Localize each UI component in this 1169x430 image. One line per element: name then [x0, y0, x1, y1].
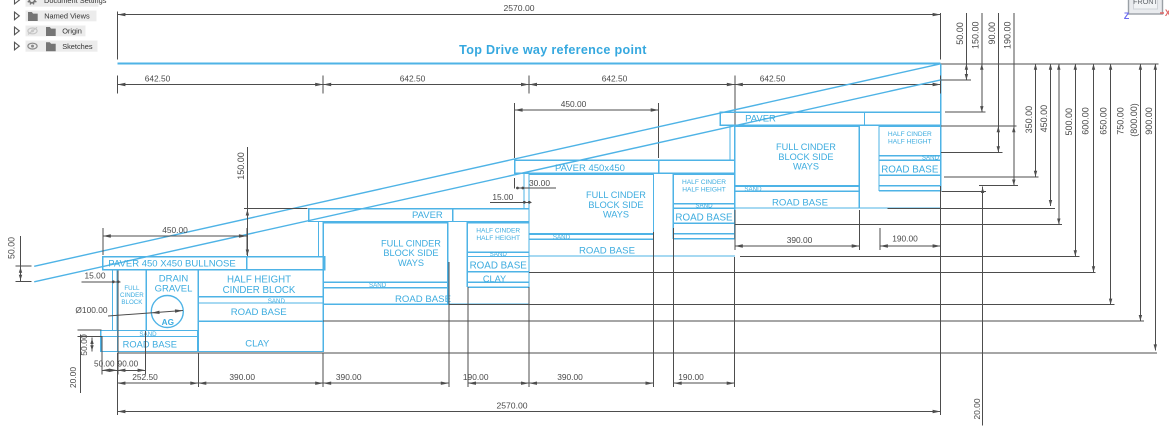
svg-text:BLOCK SIDE: BLOCK SIDE — [778, 152, 833, 162]
svg-text:CLAY: CLAY — [245, 339, 270, 350]
svg-text:190.00: 190.00 — [1002, 21, 1012, 49]
svg-text:900.00: 900.00 — [1144, 107, 1154, 135]
svg-text:ROAD BASE: ROAD BASE — [579, 246, 635, 257]
svg-text:350.00: 350.00 — [1024, 106, 1034, 134]
svg-text:15.00: 15.00 — [492, 192, 513, 202]
svg-text:FULL CINDER: FULL CINDER — [776, 142, 836, 152]
svg-text:BLOCK SIDE: BLOCK SIDE — [383, 248, 438, 258]
svg-text:450.00: 450.00 — [561, 99, 587, 109]
svg-text:600.00: 600.00 — [1080, 107, 1090, 135]
svg-text:HALF CINDER: HALF CINDER — [476, 228, 520, 235]
svg-text:Ø100.00: Ø100.00 — [75, 305, 107, 315]
svg-text:PAVER: PAVER — [745, 113, 776, 124]
svg-text:150.00: 150.00 — [970, 21, 980, 49]
svg-text:90.00: 90.00 — [118, 359, 139, 368]
svg-text:Sketches: Sketches — [62, 42, 93, 51]
svg-text:Origin: Origin — [62, 27, 82, 36]
svg-text:Document Settings: Document Settings — [44, 0, 107, 5]
svg-text:642.50: 642.50 — [145, 74, 171, 84]
svg-text:2570.00: 2570.00 — [496, 401, 527, 411]
svg-text:HALF CINDER: HALF CINDER — [888, 131, 932, 138]
svg-text:90.00: 90.00 — [987, 22, 997, 45]
svg-text:190.00: 190.00 — [678, 372, 704, 382]
svg-text:ROAD BASE: ROAD BASE — [881, 164, 939, 175]
svg-text:20.00: 20.00 — [972, 398, 982, 419]
svg-text:390.00: 390.00 — [557, 372, 583, 382]
svg-text:642.50: 642.50 — [602, 74, 628, 84]
svg-text:WAYS: WAYS — [603, 210, 629, 220]
svg-text:SAND: SAND — [268, 298, 286, 305]
svg-text:WAYS: WAYS — [398, 258, 424, 268]
svg-text:500.00: 500.00 — [1064, 108, 1074, 136]
svg-text:ROAD BASE: ROAD BASE — [470, 261, 528, 272]
svg-text:650.00: 650.00 — [1099, 107, 1109, 135]
svg-text:GRAVEL: GRAVEL — [155, 283, 193, 294]
svg-text:Z: Z — [1124, 11, 1130, 21]
svg-text:ROAD BASE: ROAD BASE — [772, 198, 828, 209]
svg-text:ROAD BASE: ROAD BASE — [395, 294, 451, 305]
svg-text:50.00: 50.00 — [94, 359, 115, 368]
svg-text:20.00: 20.00 — [68, 367, 78, 388]
svg-text:FRONT: FRONT — [1133, 0, 1158, 6]
svg-text:642.50: 642.50 — [400, 74, 426, 84]
svg-text:ROAD BASE: ROAD BASE — [675, 212, 733, 223]
svg-text:BLOCK SIDE: BLOCK SIDE — [588, 200, 643, 210]
svg-text:BLOCK: BLOCK — [121, 299, 143, 306]
svg-text:HALF HEIGHT: HALF HEIGHT — [476, 235, 520, 242]
svg-text:2570.00: 2570.00 — [503, 3, 534, 13]
svg-text:ROAD BASE: ROAD BASE — [231, 307, 287, 318]
svg-text:390.00: 390.00 — [229, 372, 255, 382]
svg-text:HALF HEIGHT: HALF HEIGHT — [888, 139, 932, 146]
svg-text:AG: AG — [162, 318, 174, 327]
svg-text:30.00: 30.00 — [529, 178, 550, 188]
svg-text:450.00: 450.00 — [1039, 105, 1049, 133]
svg-text:(800.00): (800.00) — [1129, 103, 1139, 137]
svg-text:HALF HEIGHT: HALF HEIGHT — [227, 275, 291, 286]
svg-text:190.00: 190.00 — [463, 372, 489, 382]
svg-text:750.00: 750.00 — [1116, 107, 1126, 135]
svg-text:190.00: 190.00 — [892, 234, 918, 244]
svg-text:HALF HEIGHT: HALF HEIGHT — [682, 187, 726, 194]
svg-text:252.50: 252.50 — [132, 372, 158, 382]
svg-text:CINDER BLOCK: CINDER BLOCK — [223, 285, 296, 296]
svg-text:390.00: 390.00 — [336, 372, 362, 382]
svg-text:HALF CINDER: HALF CINDER — [682, 179, 726, 186]
svg-text:CINDER: CINDER — [120, 292, 144, 299]
svg-text:PAVER: PAVER — [412, 210, 443, 221]
svg-text:WAYS: WAYS — [793, 162, 819, 172]
svg-text:FULL: FULL — [124, 285, 140, 292]
svg-text:Top Drive way reference point: Top Drive way reference point — [459, 43, 647, 57]
svg-text:X: X — [1165, 8, 1169, 18]
svg-text:50.00: 50.00 — [955, 22, 965, 45]
svg-text:CLAY: CLAY — [483, 274, 506, 284]
svg-text:PAVER 450x450: PAVER 450x450 — [555, 163, 625, 174]
svg-text:50.00: 50.00 — [7, 237, 17, 259]
svg-text:PAVER 450 X450 BULLNOSE: PAVER 450 X450 BULLNOSE — [108, 259, 235, 270]
svg-text:642.50: 642.50 — [760, 74, 786, 84]
svg-text:390.00: 390.00 — [787, 235, 813, 245]
svg-text:450.00: 450.00 — [162, 225, 188, 235]
svg-text:Named Views: Named Views — [44, 12, 90, 21]
svg-text:FULL CINDER: FULL CINDER — [586, 190, 646, 200]
svg-text:150.00: 150.00 — [236, 152, 246, 180]
svg-text:ROAD BASE: ROAD BASE — [123, 339, 177, 349]
svg-text:15.00: 15.00 — [85, 270, 106, 280]
svg-text:FULL CINDER: FULL CINDER — [381, 238, 441, 248]
